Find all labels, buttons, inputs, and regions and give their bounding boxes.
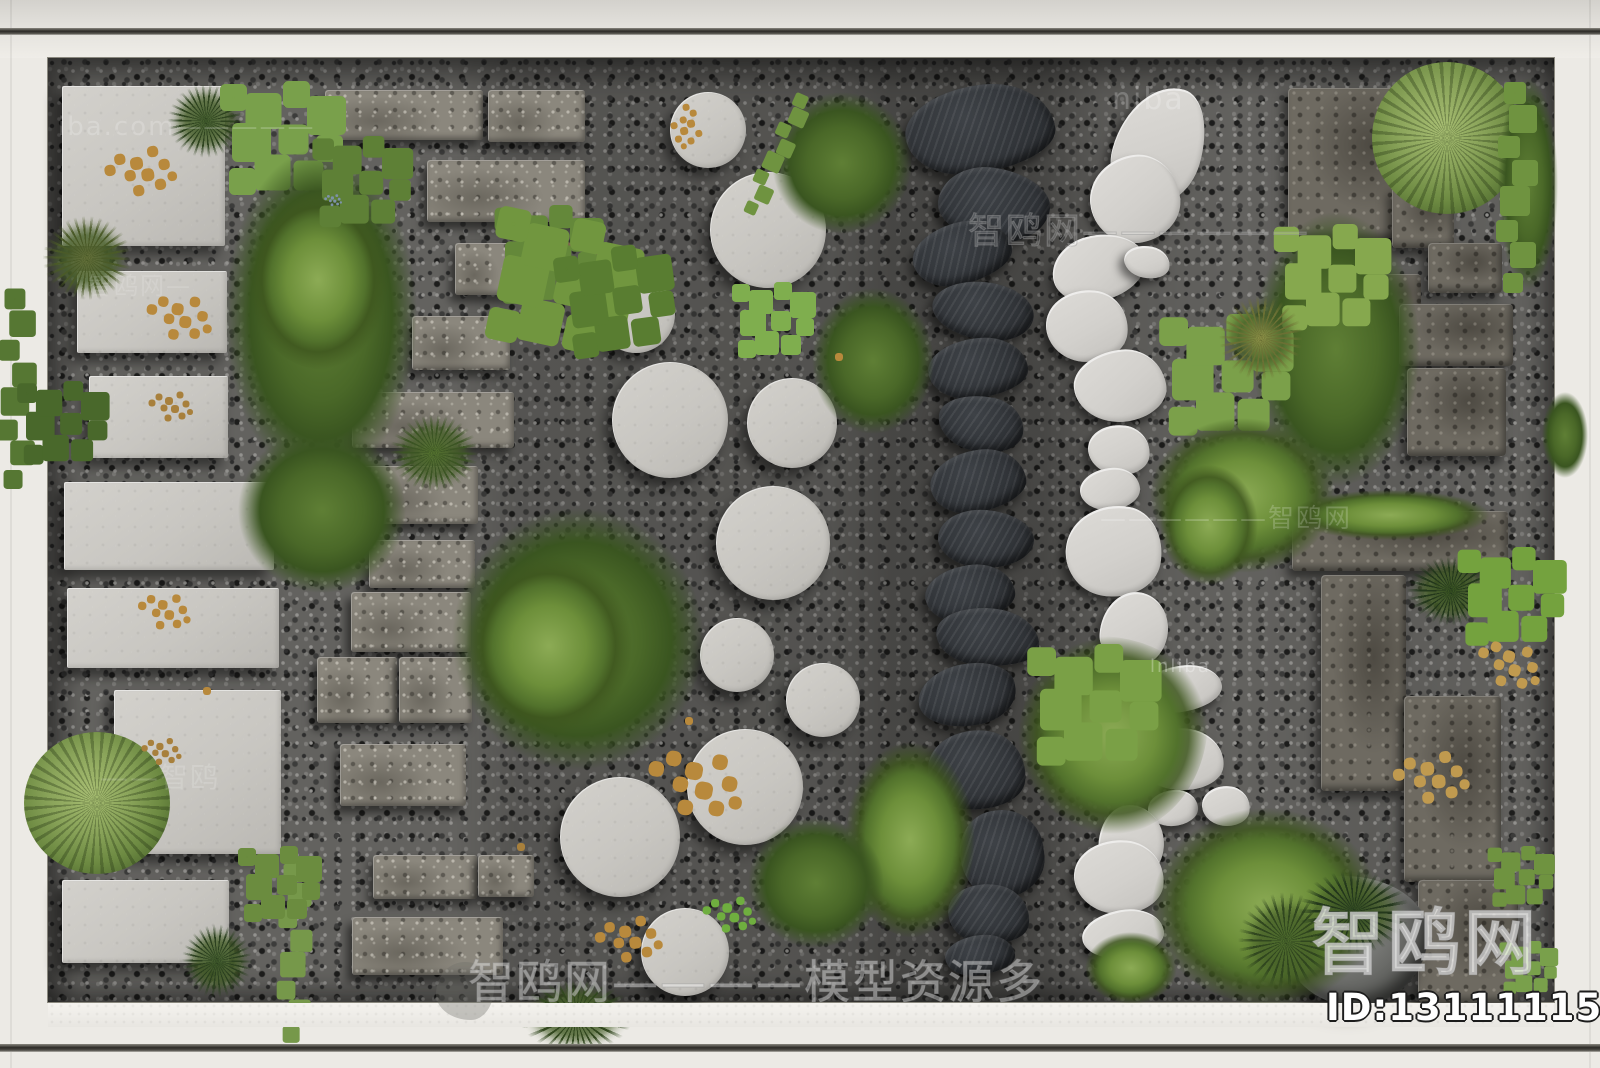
- stone-brick: [427, 160, 585, 222]
- moss-patch: [466, 556, 632, 736]
- round-paver: [786, 663, 860, 737]
- moss-patch: [812, 288, 934, 434]
- rustic-stone-slab: [1428, 243, 1502, 293]
- berry-cluster: [328, 196, 329, 197]
- stone-brick: [340, 744, 466, 806]
- concrete-paver: [89, 376, 228, 458]
- seed: [520, 846, 522, 848]
- sprig-cluster: [714, 902, 716, 904]
- watermark-bottom-band: 智鸥网————模型资源多: [468, 946, 1044, 1012]
- moss-bumps: [232, 96, 235, 99]
- moss-bumps: [246, 856, 248, 858]
- concrete-paver: [67, 588, 279, 668]
- frame-groove-bottom: [0, 1044, 1600, 1052]
- watermark-right-band: 智鸥网——————: [968, 202, 1310, 254]
- leaf-groundcover: [26, 392, 28, 394]
- garden-render: iba.com————— niba 智鸥网—————— ——————智鸥网 智鸥…: [0, 0, 1600, 1068]
- moss-bumps: [1514, 92, 1516, 94]
- frame-edge-left: [10, 0, 12, 1068]
- shrub-ball: [24, 732, 170, 874]
- watermark-right-mid: ——————智鸥网: [1100, 498, 1352, 535]
- round-paver: [612, 362, 728, 478]
- leaf-groundcover: [505, 218, 508, 221]
- stone-brick: [488, 90, 585, 142]
- watermark-top-center: niba: [1112, 82, 1185, 117]
- leaf-groundcover: [1494, 854, 1496, 856]
- seed: [838, 356, 840, 358]
- image-id-label: ID:131111155: [1326, 986, 1600, 1029]
- seed: [206, 690, 208, 692]
- seed: [688, 720, 690, 722]
- seed-cluster: [158, 396, 160, 398]
- stone-brick: [412, 316, 510, 370]
- rustic-stone-slab: [1321, 575, 1406, 791]
- leaf-groundcover: [322, 148, 324, 150]
- moss-patch: [1085, 932, 1177, 1004]
- watermark-center-small: lnliba: [1150, 656, 1211, 677]
- round-paver: [597, 275, 675, 353]
- dragonfly: [576, 230, 577, 231]
- watermark-left-lower: ——智鸥: [100, 756, 220, 796]
- stone-brick: [455, 243, 515, 295]
- rustic-stone-slab: [1407, 368, 1506, 456]
- palm-frond: [375, 402, 493, 504]
- pine-sprig: [1392, 545, 1510, 637]
- moss-patch: [1498, 78, 1558, 290]
- moss-patch: [772, 92, 912, 234]
- leaf-groundcover: [14, 298, 16, 300]
- watermark-left-upper: 智鸥网—: [88, 266, 192, 301]
- seed-cluster: [150, 742, 152, 744]
- grass-tuft: [170, 912, 264, 1010]
- round-paver: [716, 486, 830, 600]
- succulent-bumps: [1468, 560, 1471, 563]
- watermark-top-left: iba.com—————: [58, 112, 315, 142]
- site-logo: 智鸥网: [1312, 884, 1540, 989]
- moss-patch: [748, 818, 884, 948]
- frame-edge-right: [1589, 0, 1591, 1068]
- moss-bumps: [1040, 660, 1043, 663]
- round-paver: [700, 618, 774, 692]
- stone-brick: [325, 90, 483, 140]
- stone-brick: [373, 855, 477, 899]
- moss-patch: [248, 190, 388, 370]
- moss-bumps: [292, 872, 294, 874]
- stone-brick: [317, 657, 397, 723]
- rustic-stone-slab: [1404, 696, 1501, 882]
- stone-brick: [478, 855, 534, 897]
- round-paver: [670, 92, 746, 168]
- round-paver: [560, 777, 680, 897]
- moss-patch: [1542, 392, 1588, 478]
- palm-plant: [1205, 282, 1317, 394]
- groundcover-bumps: [1172, 330, 1175, 333]
- clover-patch: [740, 292, 742, 294]
- frame-groove-top: [0, 28, 1600, 35]
